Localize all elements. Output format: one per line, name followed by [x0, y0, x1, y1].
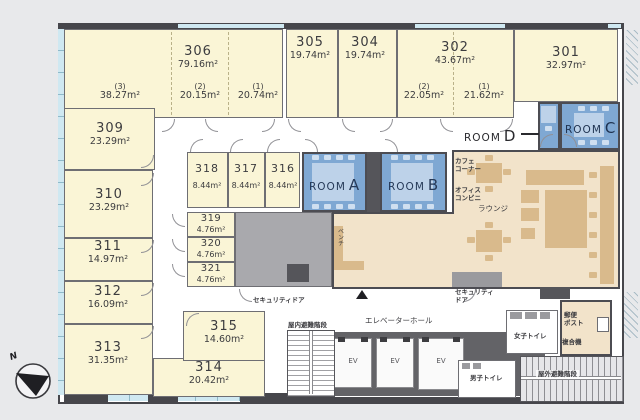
stool-icon — [589, 192, 597, 198]
outdoor-stairs-label: 屋外避難階段 — [536, 370, 579, 378]
exterior-hatch — [626, 30, 638, 85]
room-area: 23.29m² — [68, 137, 152, 148]
window-top-1 — [178, 24, 284, 28]
chair-icon — [312, 204, 319, 209]
counter — [600, 166, 614, 284]
mail-post-label: 郵便 ポスト — [564, 311, 584, 327]
room-number: 313 — [66, 341, 150, 356]
indoor-stairs-label: 屋内避難階段 — [288, 321, 327, 329]
office-convenience-label: オフィス コンビニ — [455, 186, 481, 202]
copier-machine-icon — [597, 317, 609, 332]
outdoor-stairs — [520, 356, 624, 402]
room-312-label: 312 16.09m² — [66, 285, 150, 311]
room-area: 43.67m² — [413, 56, 497, 67]
room-306-section-1-label: (1) 20.74m² — [216, 82, 300, 102]
room-number: 311 — [66, 240, 150, 255]
toilet-fixture — [540, 312, 550, 319]
corridor-marker-icon — [356, 290, 368, 299]
bench — [334, 261, 364, 270]
room-302-label: 302 43.67m² — [413, 41, 497, 67]
meeting-room-c-label: ROOMC — [565, 118, 615, 137]
sofa — [521, 190, 539, 203]
exterior-hatch — [624, 292, 638, 338]
chair-icon — [602, 106, 609, 111]
room-area: 14.97m² — [66, 255, 150, 266]
floor-plan-canvas: EV EV EV — [0, 0, 640, 420]
elevator-label: EV — [335, 357, 371, 365]
elevator-1: EV — [334, 338, 372, 388]
room-area: 23.29m² — [67, 203, 151, 214]
office-convenience-line1: オフィス — [455, 186, 481, 194]
elevator-door-icon — [403, 337, 410, 342]
chair-icon — [312, 155, 319, 160]
room-area: 32.97m² — [524, 61, 608, 72]
chair-icon — [427, 155, 434, 160]
toilet-fixture — [510, 312, 522, 319]
chair-icon — [403, 204, 410, 209]
section-area: 21.62m² — [442, 91, 526, 102]
stool-icon — [485, 186, 493, 192]
room-306 — [64, 29, 283, 118]
stool-icon — [467, 237, 475, 243]
cafe-corner-line2: コーナー — [455, 165, 481, 173]
chair-icon — [590, 140, 597, 145]
chair-icon — [324, 204, 331, 209]
room-number: 302 — [413, 41, 497, 56]
meeting-room-a-label: ROOMA — [309, 175, 359, 194]
room-311-label: 311 14.97m² — [66, 240, 150, 266]
room-number: 304 — [323, 36, 407, 51]
elevator-door-icon — [453, 337, 460, 342]
room-word: ROOM — [565, 124, 602, 136]
indoor-stairs — [287, 330, 335, 397]
room-word: ROOM — [464, 132, 501, 144]
chair-icon — [578, 140, 585, 145]
room-word: ROOM — [388, 181, 425, 193]
room-letter: A — [349, 176, 359, 194]
window-top-2 — [415, 24, 505, 28]
room-319-label: 319 4.76m² — [169, 213, 253, 234]
room-letter: D — [504, 127, 516, 145]
room-314-label: 314 20.42m² — [167, 361, 251, 387]
stool-icon — [503, 169, 511, 175]
stool-icon — [503, 237, 511, 243]
chair-icon — [602, 140, 609, 145]
room-area: 79.16m² — [156, 60, 240, 71]
room-letter: C — [605, 119, 615, 137]
room-area: 31.35m² — [66, 356, 150, 367]
stool-icon — [485, 222, 493, 228]
chair-icon — [391, 155, 398, 160]
security-door-right-line2: ドア — [455, 296, 494, 304]
room-321-label: 321 4.76m² — [169, 263, 253, 284]
copier-label: 複合機 — [562, 338, 582, 346]
sofa — [526, 170, 584, 185]
room-306-section-3-label: (3) 38.27m² — [78, 82, 162, 102]
chair-icon — [324, 155, 331, 160]
wall-block — [540, 287, 570, 299]
room-number: 318 — [165, 163, 249, 176]
room-number: 321 — [169, 263, 253, 275]
wall-block — [452, 272, 502, 287]
equipment-block — [287, 264, 309, 282]
lounge-area-west — [332, 212, 454, 289]
room-area: 4.76m² — [169, 225, 253, 234]
mail-post-line2: ポスト — [564, 319, 584, 327]
stool-icon — [589, 172, 597, 178]
side-table — [521, 228, 535, 239]
room-310-label: 310 23.29m² — [67, 188, 151, 214]
section-area: 20.74m² — [216, 91, 300, 102]
meeting-room-d-label: ROOMD — [464, 126, 515, 145]
room-number: 310 — [67, 188, 151, 203]
chair-icon — [403, 155, 410, 160]
room-area: 4.76m² — [169, 250, 253, 259]
toilet-fixture — [462, 363, 470, 369]
lounge-label: ラウンジ — [478, 204, 508, 213]
room-306-label: 306 79.16m² — [156, 45, 240, 71]
security-door-left-label: セキュリティドア — [253, 296, 305, 304]
toilet-fixture — [525, 312, 537, 319]
chair-icon — [578, 106, 585, 111]
room-number: 314 — [167, 361, 251, 376]
room-number: 301 — [524, 46, 608, 61]
room-301-label: 301 32.97m² — [524, 46, 608, 72]
room-302-section-1-label: (1) 21.62m² — [442, 82, 526, 102]
chair-icon — [348, 155, 355, 160]
room-309-label: 309 23.29m² — [68, 122, 152, 148]
lounge-table — [476, 230, 502, 252]
desk — [541, 106, 556, 123]
room-area: 19.74m² — [323, 51, 407, 62]
elevator-door-icon — [338, 337, 345, 342]
sofa — [545, 190, 587, 248]
section-area: 38.27m² — [78, 91, 162, 102]
room-number: 312 — [66, 285, 150, 300]
room-number: 319 — [169, 213, 253, 225]
room-number: 306 — [156, 45, 240, 60]
room-area: 20.42m² — [167, 376, 251, 387]
room-word: ROOM — [309, 181, 346, 193]
stool-icon — [589, 272, 597, 278]
compass-icon — [8, 356, 56, 404]
chair-icon — [415, 204, 422, 209]
chair-icon — [391, 204, 398, 209]
chair-icon — [415, 155, 422, 160]
room-area: 4.76m² — [169, 275, 253, 284]
room-318-label: 318 8.44m² — [165, 163, 249, 190]
room-313-label: 313 31.35m² — [66, 341, 150, 367]
elevator-hall-label: エレベーターホール — [365, 316, 433, 325]
room-number: 315 — [182, 320, 266, 335]
office-convenience-line2: コンビニ — [455, 194, 481, 202]
sofa — [521, 208, 539, 221]
room-304-label: 304 19.74m² — [323, 36, 407, 62]
chair-icon — [590, 106, 597, 111]
room-area: 8.44m² — [165, 181, 249, 190]
room-number: 320 — [169, 238, 253, 250]
chair-icon — [427, 204, 434, 209]
chair-icon — [336, 204, 343, 209]
bench-label: ベンチ — [336, 228, 344, 246]
wall-block — [367, 152, 380, 212]
room-area: 14.60m² — [182, 335, 266, 346]
room-area: 16.09m² — [66, 300, 150, 311]
elevator-label: EV — [377, 357, 413, 365]
meeting-room-b-label: ROOMB — [388, 175, 438, 194]
stool-icon — [589, 232, 597, 238]
chair-icon — [545, 126, 552, 131]
stool-icon — [485, 155, 493, 161]
stool-icon — [589, 252, 597, 258]
toilet-fixture — [473, 363, 481, 369]
cafe-corner-label: カフェ コーナー — [455, 157, 481, 173]
security-door-right-label: セキュリティ ドア — [455, 288, 494, 304]
elevator-door-icon — [361, 337, 368, 342]
room-d-pointer — [521, 133, 539, 135]
elevator-door-icon — [422, 337, 429, 342]
room-320-label: 320 4.76m² — [169, 238, 253, 259]
elevator-label: EV — [419, 357, 463, 365]
room-315-label: 315 14.60m² — [182, 320, 266, 346]
mail-post-line1: 郵便 — [564, 311, 584, 319]
chair-icon — [336, 155, 343, 160]
stair-divider — [309, 331, 313, 394]
elevator-2: EV — [376, 338, 414, 388]
room-letter: B — [428, 176, 438, 194]
womens-toilet-label: 女子トイレ — [514, 332, 547, 340]
chair-icon — [348, 204, 355, 209]
mens-toilet-label: 男子トイレ — [470, 374, 503, 382]
stool-icon — [589, 212, 597, 218]
room-number: 309 — [68, 122, 152, 137]
elevator-door-icon — [380, 337, 387, 342]
window-top-3 — [608, 24, 621, 28]
security-door-right-line1: セキュリティ — [455, 288, 494, 296]
stool-icon — [485, 255, 493, 261]
cafe-corner-line1: カフェ — [455, 157, 481, 165]
